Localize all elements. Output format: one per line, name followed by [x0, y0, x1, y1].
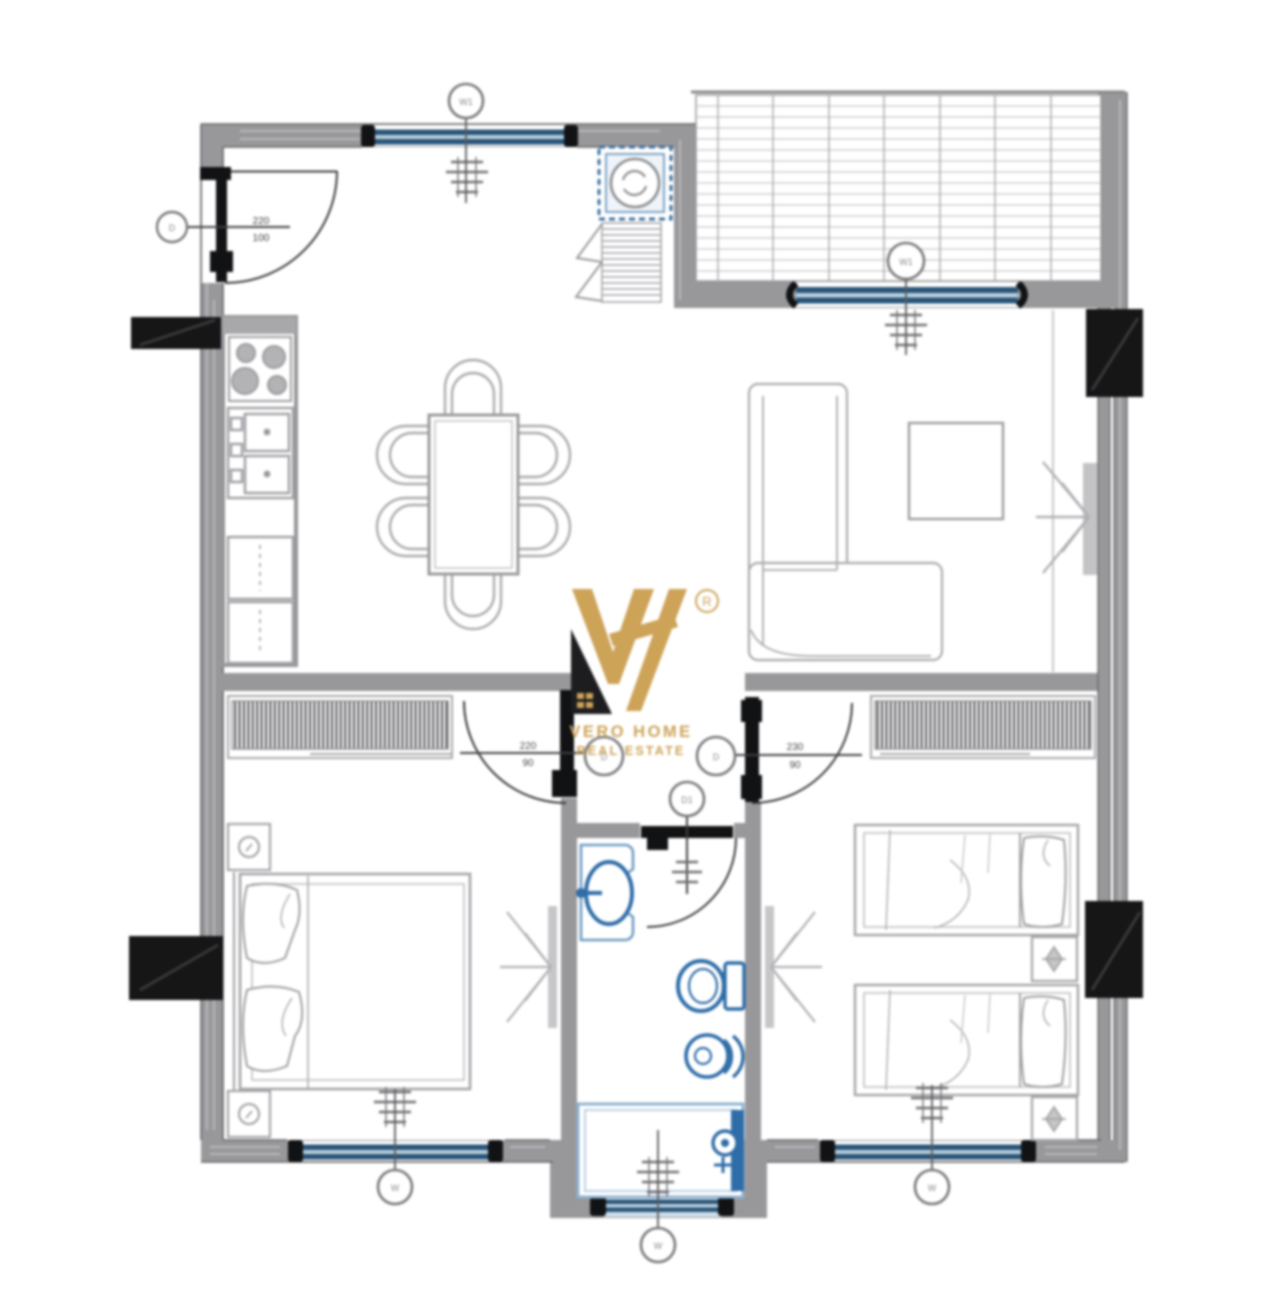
svg-text:90: 90 — [789, 760, 801, 771]
svg-text:D: D — [169, 223, 176, 233]
svg-text:W1: W1 — [459, 97, 473, 107]
svg-text:220: 220 — [253, 216, 270, 227]
svg-text:VERO HOME: VERO HOME — [569, 723, 692, 741]
svg-text:D: D — [713, 752, 720, 762]
svg-text:230: 230 — [787, 742, 804, 753]
svg-text:90: 90 — [522, 758, 534, 769]
svg-text:R: R — [702, 594, 711, 609]
svg-text:W: W — [391, 1183, 400, 1193]
svg-text:220: 220 — [520, 741, 537, 752]
svg-text:REAL ESTATE: REAL ESTATE — [577, 744, 686, 758]
svg-text:100: 100 — [253, 233, 270, 244]
svg-text:W: W — [654, 1241, 663, 1251]
svg-text:W1: W1 — [899, 257, 913, 267]
svg-text:D1: D1 — [681, 795, 693, 805]
svg-text:W: W — [928, 1183, 937, 1193]
